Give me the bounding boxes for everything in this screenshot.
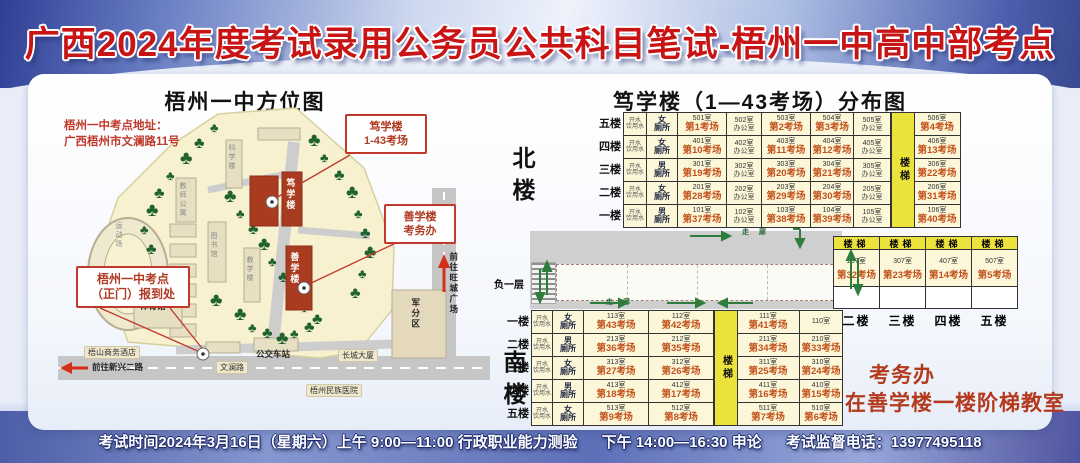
room-name: 第4考场 <box>920 123 954 133</box>
room-name: 第22考场 <box>917 169 956 179</box>
toilet-room: 女 厕所 <box>646 112 678 136</box>
water-room: 开水 饮用水 <box>531 402 553 426</box>
exam-room: 303室第20考场 <box>761 158 811 182</box>
exam-room: 406室第13考场 <box>913 135 961 159</box>
room-number: 305室 <box>863 163 882 170</box>
floor-label: 四楼 <box>925 312 972 326</box>
exam-room: 503室第2考场 <box>761 112 811 136</box>
callout-line: 梧州一中考点 <box>81 272 185 287</box>
room-number: 110室 <box>812 318 830 325</box>
callout-gate: 梧州一中考点 （正门）报到处 <box>76 266 190 308</box>
exam-room: 506室第4考场 <box>913 112 961 136</box>
room-name: 第27考场 <box>596 367 635 377</box>
north-building-label: 北楼 <box>505 146 539 210</box>
callout-line: 1-43考场 <box>350 134 422 148</box>
exam-room: 511室第7考场 <box>736 402 800 426</box>
floor-label: 二楼 <box>504 333 532 357</box>
room-number: 102室 <box>735 209 754 216</box>
toilet-room: 男 厕所 <box>646 158 678 182</box>
room-name: 第7考场 <box>751 413 785 423</box>
room-name: 第29考场 <box>766 192 805 202</box>
toilet-room: 男 厕所 <box>552 379 584 403</box>
room-name: 第40考场 <box>917 215 956 225</box>
room-name: 第25考场 <box>748 367 787 377</box>
room-name: 办公室 <box>734 125 755 132</box>
stairs-header: 楼梯 <box>925 236 972 250</box>
annex-column: 楼梯507室第5考场五楼 <box>971 236 1018 326</box>
exam-room: 513室第9考场 <box>583 402 649 426</box>
room-name: 办公室 <box>734 194 755 201</box>
room-name: 第15考场 <box>801 390 840 400</box>
exam-room: 310室第24考场 <box>799 356 843 380</box>
room-name: 第26考场 <box>661 367 700 377</box>
room-name: 办公室 <box>862 171 883 178</box>
room-name: 第41考场 <box>748 321 787 331</box>
exam-room: 412室第17考场 <box>648 379 714 403</box>
exam-room: 501室第1考场 <box>677 112 727 136</box>
room-name: 第1考场 <box>685 123 719 133</box>
exam-room: 306室第22考场 <box>913 158 961 182</box>
floor-label: 五楼 <box>971 312 1018 326</box>
room-name: 办公室 <box>862 125 883 132</box>
room-name: 第11考场 <box>767 146 806 156</box>
callout-shanxue: 善学楼 考务办 <box>384 204 456 244</box>
room-name: 第14考场 <box>929 267 968 281</box>
exam-room: 410室第15考场 <box>799 379 843 403</box>
water-room: 开水 饮用水 <box>623 158 647 182</box>
room-number: 407室 <box>939 256 958 266</box>
map-label: 笃学楼 <box>285 178 295 211</box>
office-room: 305室办公室 <box>853 158 891 182</box>
room-name: 第17考场 <box>661 390 700 400</box>
room-name: 办公室 <box>862 194 883 201</box>
water-room: 开水 饮用水 <box>623 112 647 136</box>
exam-room: 213室第36考场 <box>583 333 649 357</box>
room-name: 办公室 <box>862 217 883 224</box>
exam-room: 313室第27考场 <box>583 356 649 380</box>
room-name: 第34考场 <box>748 344 787 354</box>
room-number: 507室 <box>985 256 1004 266</box>
room-number: 502室 <box>735 117 754 124</box>
map-label: 梧州民族医院 <box>306 384 362 397</box>
map-label: 公交车站 <box>256 350 290 360</box>
exam-room: 504室第3考场 <box>810 112 854 136</box>
exam-room: 206室第31考场 <box>913 181 961 205</box>
office-room: 205室办公室 <box>853 181 891 205</box>
exam-room: 210室第33考场 <box>799 333 843 357</box>
floor-row: 五楼开水 饮用水女 厕所513室第9考场512室第8考场511室第7考场510室… <box>504 402 843 426</box>
empty-room <box>925 286 972 309</box>
callout-line: （正门）报到处 <box>81 287 185 302</box>
room-name: 办公室 <box>734 148 755 155</box>
south-building-table: 一楼开水 饮用水女 厕所113室第43考场112室第42考场111室第41考场1… <box>504 310 843 426</box>
exam-room: 311室第25考场 <box>736 356 800 380</box>
map-label: 教师公寓 <box>178 182 186 218</box>
page-title: 广西2024年度考试录用公务员公共科目笔试-梧州一中高中部考点 <box>0 16 1080 67</box>
water-room: 开水 饮用水 <box>531 333 553 357</box>
room-name: 第43考场 <box>596 321 635 331</box>
map-label: 长城大厦 <box>338 349 378 362</box>
office-room: 502室办公室 <box>726 112 762 136</box>
toilet-room: 女 厕所 <box>552 402 584 426</box>
floor-label: 三楼 <box>596 158 624 182</box>
callout-line: 考务办 <box>389 224 451 238</box>
callout-line: 笃学楼 <box>350 120 422 134</box>
room-number: 105室 <box>863 209 882 216</box>
exam-room: 106室第40考场 <box>913 204 961 228</box>
room-number: 405室 <box>863 140 882 147</box>
exam-room: 301室第19考场 <box>677 158 727 182</box>
room-number: 205室 <box>863 186 882 193</box>
room-name: 第42考场 <box>661 321 700 331</box>
toilet-room: 男 厕所 <box>552 333 584 357</box>
room-name: 第9考场 <box>599 413 633 423</box>
office-room: 202室办公室 <box>726 181 762 205</box>
room-name: 第38考场 <box>766 215 805 225</box>
map-label: 图书馆 <box>209 232 217 259</box>
corridor-arrows <box>495 225 920 318</box>
exam-room: 413室第18考场 <box>583 379 649 403</box>
floor-label: 四楼 <box>504 379 532 403</box>
water-room: 开水 饮用水 <box>623 181 647 205</box>
map-label: 运动场 <box>114 222 122 249</box>
room-name: 第31考场 <box>917 192 956 202</box>
exam-afternoon: 下午 14:00—16:30 申论 <box>602 434 762 451</box>
room-name: 办公室 <box>734 217 755 224</box>
room-name: 第6考场 <box>804 413 838 423</box>
map-label: 梧山商务酒店 <box>84 346 140 359</box>
stairs-header: 楼梯 <box>971 236 1018 250</box>
exam-room: 211室第34考场 <box>736 333 800 357</box>
annex-column: 楼梯407室第14考场四楼 <box>925 236 972 326</box>
exam-room: 403室第11考场 <box>761 135 811 159</box>
exam-room: 512室第8考场 <box>648 402 714 426</box>
room-name: 第16考场 <box>748 390 787 400</box>
room-number: 402室 <box>735 140 754 147</box>
map-label: 善学楼 <box>289 252 299 285</box>
water-room: 开水 饮用水 <box>623 135 647 159</box>
floor-label: 五楼 <box>504 402 532 426</box>
map-label: 科学楼 <box>227 144 235 171</box>
exam-room: 407室第14考场 <box>925 249 972 287</box>
floor-row: 三楼开水 饮用水女 厕所313室第27考场312室第26考场311室第25考场3… <box>504 356 843 380</box>
exam-time: 考试时间2024年3月16日（星期六）上午 9:00—11:00 行政职业能力测… <box>98 434 577 451</box>
room-name: 第8考场 <box>664 413 698 423</box>
office-note-line1: 考务办 <box>845 362 1065 390</box>
office-room: 402室办公室 <box>726 135 762 159</box>
map-label: 军分区 <box>410 298 420 330</box>
room-name: 第39考场 <box>812 215 851 225</box>
water-room: 开水 饮用水 <box>531 356 553 380</box>
supervision-phone: 考试监督电话：13977495118 <box>786 434 982 451</box>
address-line1: 梧州一中考点地址： <box>64 118 180 134</box>
stairs-column: 楼梯 <box>714 310 738 426</box>
room-name: 第19考场 <box>682 169 721 179</box>
exam-room: 201室第28考场 <box>677 181 727 205</box>
exam-room: 507室第5考场 <box>971 249 1018 287</box>
exam-room: 312室第26考场 <box>648 356 714 380</box>
room-name: 第28考场 <box>682 192 721 202</box>
campus-map: ♣♣♣♣♣♣♣♣♣♣♣♣♣♣♣♣♣♣♣♣♣♣♣♣♣♣♣♣♣♣♣♣♣ <box>58 106 490 428</box>
room-name: 第13考场 <box>917 146 956 156</box>
room-name: 第12考场 <box>812 146 851 156</box>
room-name: 第21考场 <box>812 169 851 179</box>
room-name: 第5考场 <box>978 267 1012 281</box>
exam-room: 212室第35考场 <box>648 333 714 357</box>
map-label: 前往新兴二路 <box>92 363 143 373</box>
room-name: 第37考场 <box>682 215 721 225</box>
exam-room: 404室第12考场 <box>810 135 854 159</box>
toilet-room: 女 厕所 <box>646 135 678 159</box>
floor-row: 四楼开水 饮用水男 厕所413室第18考场412室第17考场411室第16考场4… <box>504 379 843 403</box>
floor-label: 三楼 <box>504 356 532 380</box>
exam-room: 204室第30考场 <box>810 181 854 205</box>
exam-room: 203室第29考场 <box>761 181 811 205</box>
room-number: 505室 <box>863 117 882 124</box>
room-name: 第24考场 <box>801 367 840 377</box>
room-number: 202室 <box>735 186 754 193</box>
callout-duxue: 笃学楼 1-43考场 <box>345 114 427 154</box>
toilet-room: 女 厕所 <box>646 181 678 205</box>
office-note: 考务办 在善学楼一楼阶梯教室 <box>845 362 1065 418</box>
exam-room: 411室第16考场 <box>736 379 800 403</box>
room-name: 第33考场 <box>801 344 840 354</box>
office-room: 505室办公室 <box>853 112 891 136</box>
room-name: 第2考场 <box>769 123 803 133</box>
floor-label: 二楼 <box>596 181 624 205</box>
poster: 广西2024年度考试录用公务员公共科目笔试-梧州一中高中部考点 梧州一中方位图 … <box>0 0 1080 463</box>
room-name: 办公室 <box>734 171 755 178</box>
exam-room: 304室第21考场 <box>810 158 854 182</box>
venue-address: 梧州一中考点地址： 广西梧州市文澜路11号 <box>64 118 180 150</box>
exam-room: 401室第10考场 <box>677 135 727 159</box>
office-room: 302室办公室 <box>726 158 762 182</box>
water-room: 开水 饮用水 <box>531 379 553 403</box>
room-name: 办公室 <box>862 148 883 155</box>
office-room: 405室办公室 <box>853 135 891 159</box>
stairs-column: 楼梯 <box>891 112 915 228</box>
room-name: 第30考场 <box>812 192 851 202</box>
map-label: 教学楼 <box>245 256 253 283</box>
map-label: 前往旺城广场 <box>448 252 458 315</box>
floor-label: 四楼 <box>596 135 624 159</box>
toilet-room: 女 厕所 <box>552 356 584 380</box>
room-name: 第35考场 <box>661 344 700 354</box>
empty-room <box>971 286 1018 309</box>
floor-label: 五楼 <box>596 112 624 136</box>
map-label: 文澜路 <box>216 361 248 374</box>
floor-row: 二楼开水 饮用水男 厕所213室第36考场212室第35考场211室第34考场2… <box>504 333 843 357</box>
room-number: 302室 <box>735 163 754 170</box>
room-name: 第36考场 <box>596 344 635 354</box>
office-note-line2: 在善学楼一楼阶梯教室 <box>845 390 1065 418</box>
room-name: 第3考场 <box>815 123 849 133</box>
address-line2: 广西梧州市文澜路11号 <box>64 134 180 150</box>
exam-room: 510室第6考场 <box>799 402 843 426</box>
room-name: 第20考场 <box>766 169 805 179</box>
room-name: 第18考场 <box>596 390 635 400</box>
callout-line: 善学楼 <box>389 210 451 224</box>
room-name: 第10考场 <box>682 146 721 156</box>
footer-info: 考试时间2024年3月16日（星期六）上午 9:00—11:00 行政职业能力测… <box>0 431 1080 452</box>
